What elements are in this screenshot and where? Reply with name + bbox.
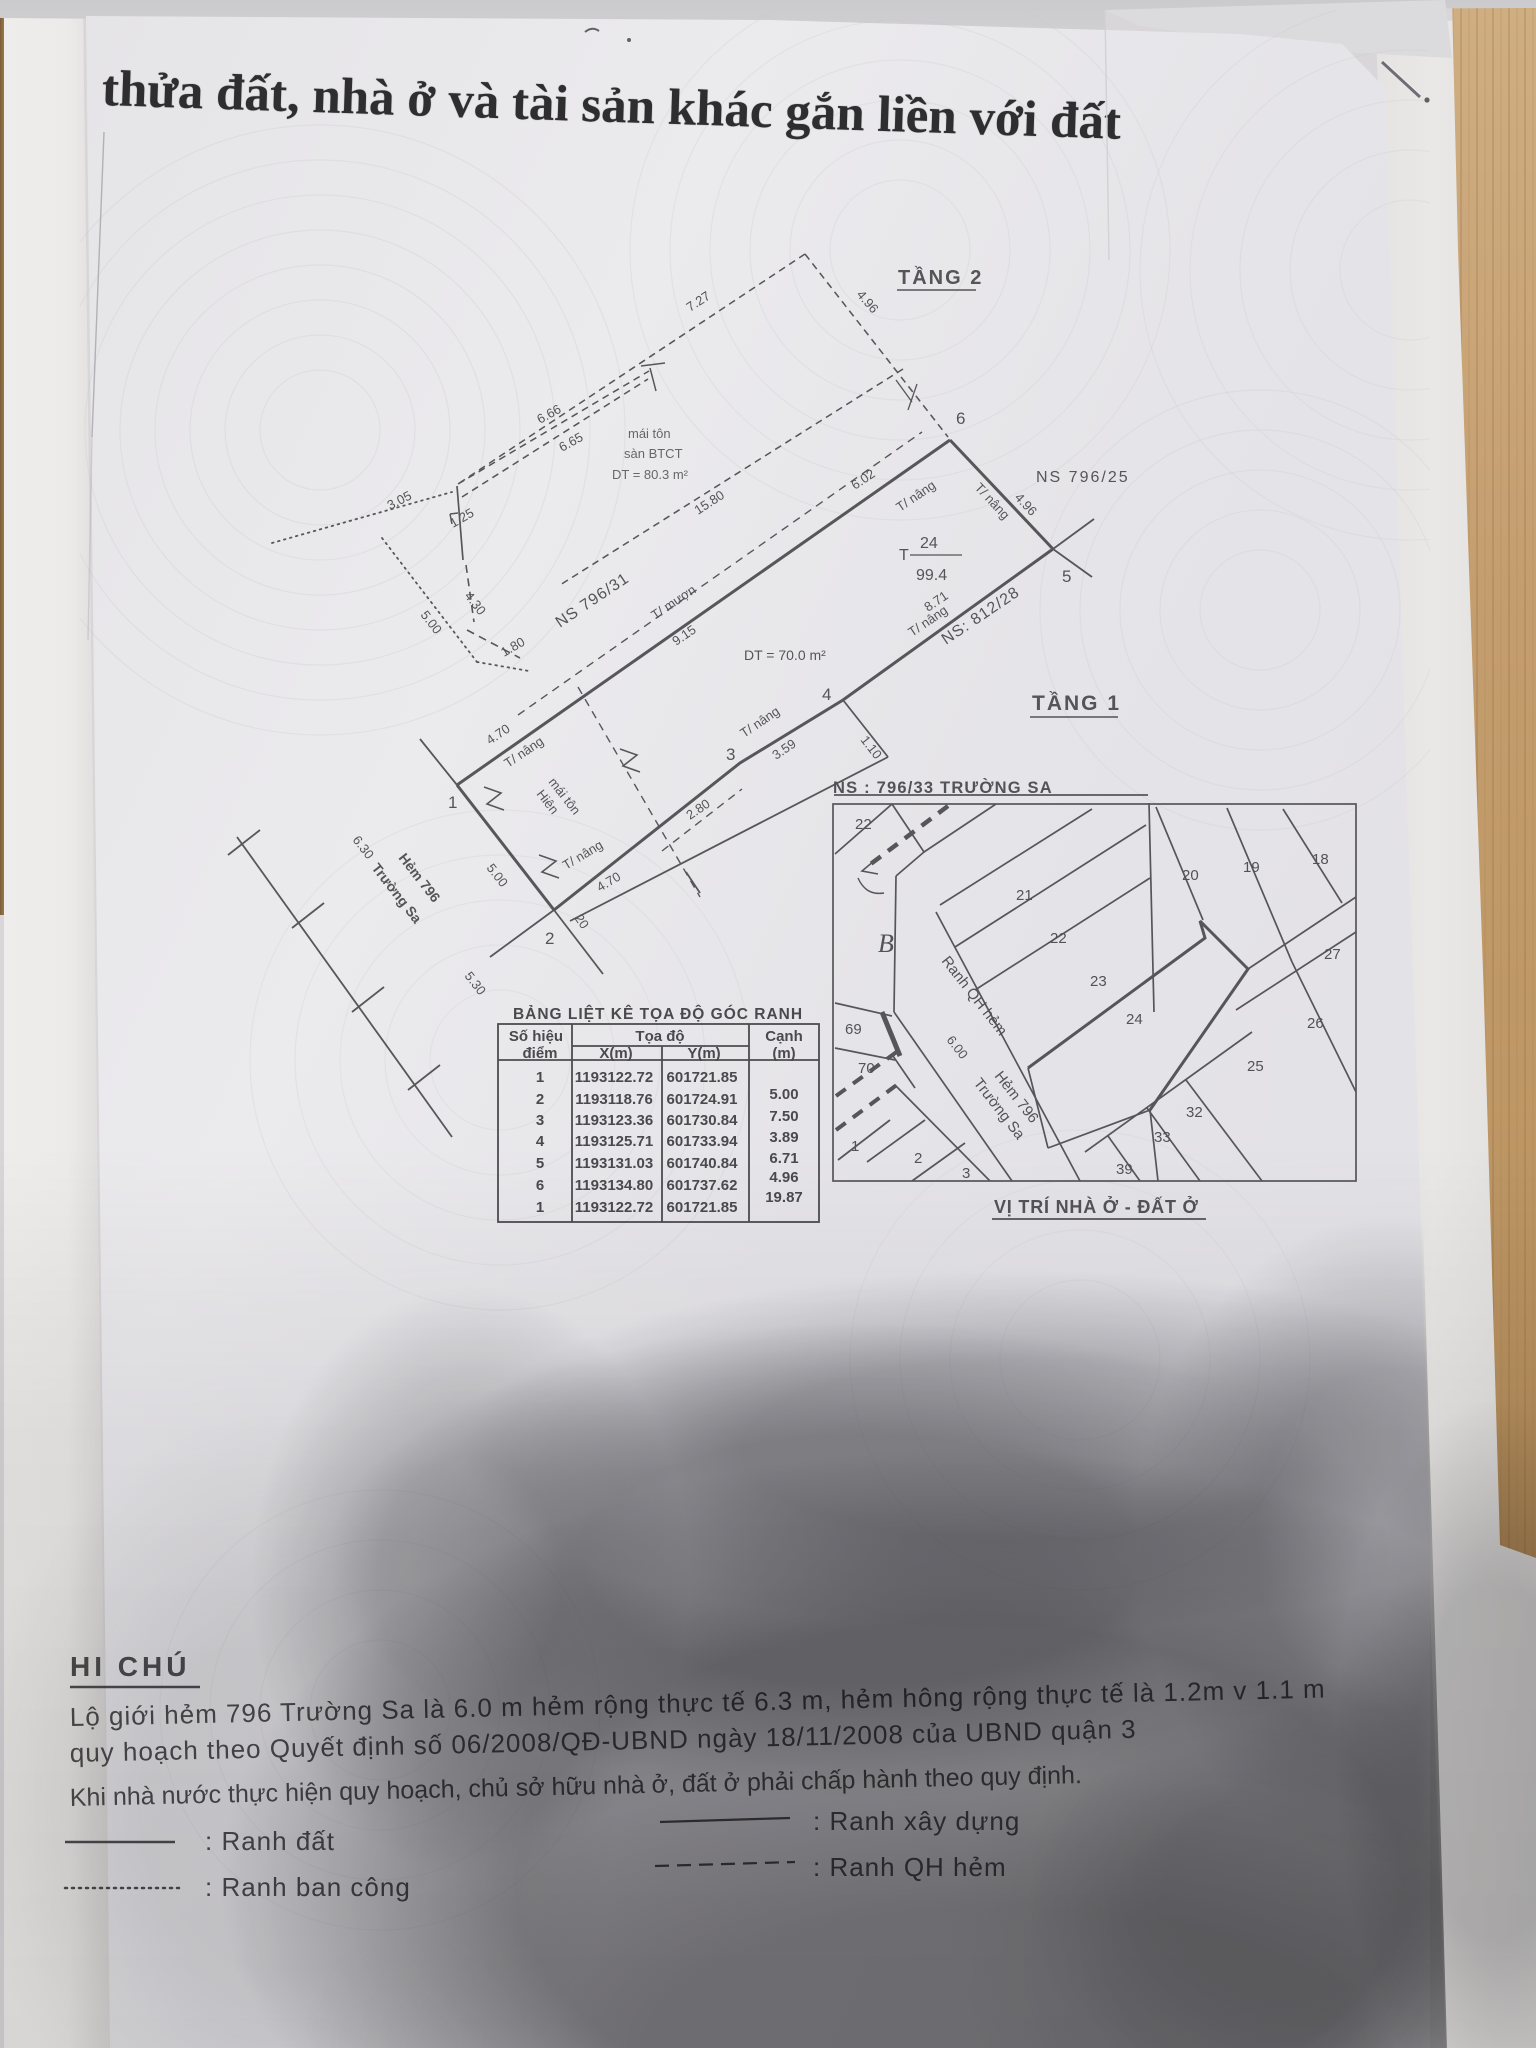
svg-text:70: 70 [858, 1060, 875, 1077]
svg-text:: Ranh QH hẻm: : Ranh QH hẻm [813, 1852, 1007, 1882]
svg-text:1193125.71: 1193125.71 [575, 1133, 653, 1150]
svg-text:2: 2 [914, 1150, 922, 1167]
svg-text:23: 23 [1090, 973, 1107, 990]
svg-text:601733.94: 601733.94 [667, 1133, 739, 1150]
svg-text:22: 22 [855, 816, 872, 833]
svg-text:69: 69 [845, 1021, 862, 1038]
svg-text:5.00: 5.00 [484, 861, 511, 890]
svg-text:Tọa độ: Tọa độ [635, 1028, 684, 1045]
svg-text:3.59: 3.59 [769, 736, 798, 763]
svg-text:T/ mượn: T/ mượn [648, 582, 698, 623]
svg-text:5.00: 5.00 [418, 608, 445, 637]
svg-text:5.30: 5.30 [462, 969, 489, 998]
svg-text:6.02: 6.02 [848, 466, 877, 493]
svg-text:33: 33 [1154, 1129, 1171, 1146]
svg-text:4.96: 4.96 [1012, 490, 1040, 519]
svg-text:601737.62: 601737.62 [667, 1177, 738, 1194]
svg-text:mái tôn: mái tôn [628, 426, 671, 441]
svg-text:4.30: 4.30 [462, 589, 489, 618]
svg-text:1193131.03: 1193131.03 [575, 1155, 653, 1172]
svg-text:Y(m): Y(m) [687, 1045, 720, 1062]
svg-text:NS 796/25: NS 796/25 [1036, 469, 1130, 486]
svg-text:20: 20 [1182, 867, 1199, 884]
svg-text:601730.84: 601730.84 [667, 1112, 739, 1129]
svg-text:HI CHÚ: HI CHÚ [70, 1651, 190, 1682]
svg-text:VỊ TRÍ NHÀ Ở - ĐẤT Ở: VỊ TRÍ NHÀ Ở - ĐẤT Ở [994, 1196, 1199, 1217]
svg-text:T/ nâng: T/ nâng [560, 837, 606, 873]
svg-text:1193122.72: 1193122.72 [575, 1199, 653, 1216]
svg-text:T: T [899, 547, 909, 564]
svg-text:19: 19 [1243, 859, 1260, 876]
svg-text:6: 6 [536, 1177, 544, 1194]
svg-text:sàn BTCT: sàn BTCT [624, 446, 683, 461]
svg-text:T/ nâng: T/ nâng [893, 477, 938, 514]
svg-text:TẦNG 2: TẦNG 2 [898, 266, 983, 289]
svg-text:: Ranh xây dựng: : Ranh xây dựng [813, 1806, 1020, 1836]
svg-text:1.80: 1.80 [498, 634, 527, 660]
svg-text:601721.85: 601721.85 [667, 1069, 738, 1086]
svg-text:21: 21 [1016, 887, 1033, 904]
svg-text:NS: 812/28: NS: 812/28 [939, 584, 1023, 648]
svg-text:5.00: 5.00 [769, 1086, 798, 1103]
svg-text:3: 3 [962, 1165, 970, 1182]
svg-text:22: 22 [1050, 930, 1067, 947]
svg-text:DT = 80.3 m²: DT = 80.3 m² [612, 467, 689, 482]
svg-text:601724.91: 601724.91 [667, 1091, 738, 1108]
svg-text:7.50: 7.50 [769, 1108, 798, 1125]
svg-text:: Ranh ban công: : Ranh ban công [205, 1872, 411, 1902]
svg-text:T/ nâng: T/ nâng [737, 703, 782, 740]
svg-text:6.66: 6.66 [534, 401, 563, 426]
svg-text:4.70: 4.70 [483, 721, 512, 748]
svg-text:1: 1 [536, 1199, 544, 1216]
svg-text:18: 18 [1312, 851, 1329, 868]
svg-text:1193134.80: 1193134.80 [575, 1177, 653, 1194]
svg-text:6.71: 6.71 [769, 1150, 798, 1167]
svg-text:1: 1 [536, 1069, 544, 1086]
svg-text:4.70: 4.70 [594, 869, 623, 895]
svg-text:5: 5 [536, 1155, 544, 1172]
svg-text:Ranh QH hẻm: Ranh QH hẻm [938, 953, 1010, 1039]
svg-text:(m): (m) [772, 1045, 795, 1062]
svg-text:6.30: 6.30 [350, 833, 377, 862]
svg-text:BẢNG LIỆT KÊ TỌA ĐỘ GÓC RANH: BẢNG LIỆT KÊ TỌA ĐỘ GÓC RANH [513, 1005, 803, 1023]
svg-text:2: 2 [536, 1091, 544, 1108]
svg-text:1: 1 [448, 793, 457, 812]
svg-text:TẦNG 1: TẦNG 1 [1032, 692, 1121, 715]
svg-text:điểm: điểm [522, 1045, 557, 1062]
svg-text:9.15: 9.15 [669, 622, 698, 649]
svg-text:99.4: 99.4 [916, 567, 947, 584]
svg-text:3: 3 [726, 745, 735, 764]
svg-text:1.10: 1.10 [858, 733, 885, 762]
svg-text:39: 39 [1116, 1161, 1133, 1178]
svg-text:Khi nhà nước thực hiện quy hoạ: Khi nhà nước thực hiện quy hoạch, chủ sở… [70, 1761, 1083, 1812]
svg-text:2.80: 2.80 [683, 796, 712, 823]
svg-text:3: 3 [536, 1112, 544, 1129]
svg-text:20: 20 [572, 911, 593, 931]
svg-text:1193123.36: 1193123.36 [575, 1112, 653, 1129]
svg-text:1193118.76: 1193118.76 [575, 1091, 653, 1108]
svg-text:B: B [878, 929, 894, 958]
svg-text:601740.84: 601740.84 [667, 1155, 739, 1172]
svg-text:4.96: 4.96 [769, 1169, 798, 1186]
svg-text:1193122.72: 1193122.72 [575, 1069, 653, 1086]
svg-text:NS 796/31: NS 796/31 [553, 570, 633, 631]
svg-text:1.25: 1.25 [447, 505, 476, 531]
svg-text:3.05: 3.05 [385, 488, 414, 513]
svg-text:: Ranh đất: : Ranh đất [205, 1826, 335, 1856]
svg-text:6: 6 [956, 409, 965, 428]
svg-text:19.87: 19.87 [765, 1189, 803, 1206]
svg-text:4.96: 4.96 [854, 287, 882, 316]
svg-text:24: 24 [1126, 1011, 1143, 1028]
svg-text:4: 4 [536, 1133, 545, 1150]
svg-text:25: 25 [1247, 1058, 1264, 1075]
svg-text:X(m): X(m) [599, 1045, 632, 1062]
svg-text:NS : 796/33 TRƯỜNG SA: NS : 796/33 TRƯỜNG SA [833, 778, 1053, 797]
svg-text:6.65: 6.65 [556, 429, 585, 454]
svg-text:4: 4 [822, 685, 831, 704]
svg-text:1: 1 [851, 1138, 859, 1155]
svg-text:26: 26 [1307, 1015, 1324, 1032]
svg-text:5: 5 [1062, 567, 1071, 586]
svg-text:3.89: 3.89 [769, 1129, 798, 1146]
svg-text:Cạnh: Cạnh [765, 1028, 803, 1045]
svg-text:601721.85: 601721.85 [667, 1199, 738, 1216]
svg-text:2: 2 [545, 929, 554, 948]
svg-text:6.00: 6.00 [944, 1033, 971, 1062]
svg-text:Số hiệu: Số hiệu [509, 1028, 563, 1045]
svg-text:27: 27 [1324, 946, 1341, 963]
svg-text:24: 24 [920, 535, 938, 552]
svg-text:DT = 70.0 m²: DT = 70.0 m² [744, 647, 826, 663]
svg-text:32: 32 [1186, 1104, 1203, 1121]
svg-text:7.27: 7.27 [683, 288, 712, 314]
